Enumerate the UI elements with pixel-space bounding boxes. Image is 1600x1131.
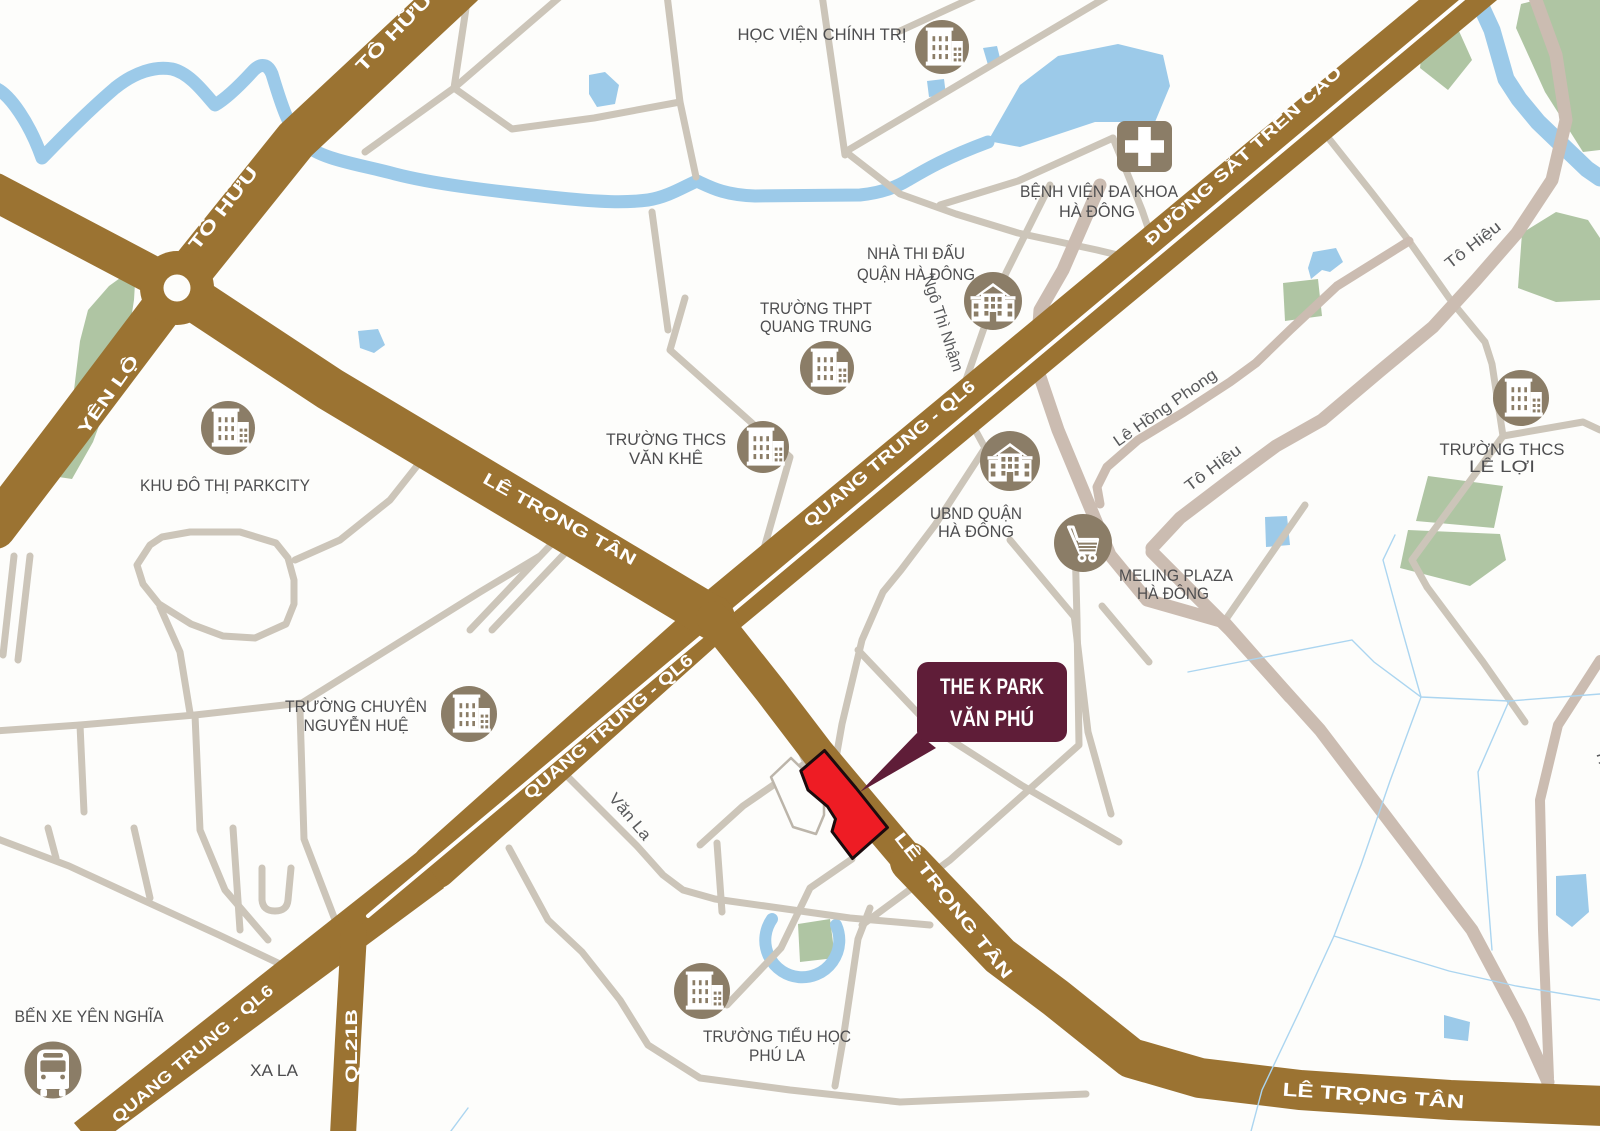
svg-text:NGUYỄN HUỆ: NGUYỄN HUỆ (304, 716, 409, 735)
svg-text:HỌC VIỆN CHÍNH TRỊ: HỌC VIỆN CHÍNH TRỊ (738, 25, 907, 44)
svg-text:TRƯỜNG THCS: TRƯỜNG THCS (606, 430, 726, 449)
svg-text:QL21B: QL21B (342, 1009, 361, 1083)
svg-text:NHÀ THI ĐẤU: NHÀ THI ĐẤU (867, 244, 965, 263)
svg-text:THE K PARK: THE K PARK (940, 674, 1044, 699)
svg-text:QUANG TRUNG: QUANG TRUNG (760, 317, 872, 336)
svg-text:TRƯỜNG THPT: TRƯỜNG THPT (760, 299, 872, 318)
svg-text:VĂN PHÚ: VĂN PHÚ (950, 706, 1034, 731)
svg-text:TRƯỜNG TIỂU HỌC: TRƯỜNG TIỂU HỌC (703, 1027, 851, 1046)
svg-text:LÊ LỢI: LÊ LỢI (1469, 457, 1535, 476)
svg-text:BẾN XE YÊN NGHĨA: BẾN XE YÊN NGHĨA (15, 1007, 165, 1026)
svg-text:HÀ ĐÔNG: HÀ ĐÔNG (938, 522, 1014, 541)
svg-text:BỆNH VIỆN ĐA KHOA: BỆNH VIỆN ĐA KHOA (1020, 182, 1179, 201)
svg-text:UBND QUẬN: UBND QUẬN (930, 504, 1022, 523)
svg-text:HÀ ĐÔNG: HÀ ĐÔNG (1059, 202, 1135, 221)
svg-text:HÀ ĐÔNG: HÀ ĐÔNG (1137, 584, 1209, 603)
svg-text:VĂN KHÊ: VĂN KHÊ (629, 449, 703, 468)
svg-text:KHU ĐÔ THỊ PARKCITY: KHU ĐÔ THỊ PARKCITY (140, 476, 310, 495)
svg-text:XA LA: XA LA (250, 1061, 299, 1080)
svg-text:QUẬN HÀ ĐÔNG: QUẬN HÀ ĐÔNG (857, 265, 975, 284)
svg-text:PHÚ LA: PHÚ LA (749, 1046, 806, 1065)
svg-text:TRƯỜNG CHUYÊN: TRƯỜNG CHUYÊN (285, 697, 427, 716)
svg-text:MELING PLAZA: MELING PLAZA (1119, 566, 1234, 585)
